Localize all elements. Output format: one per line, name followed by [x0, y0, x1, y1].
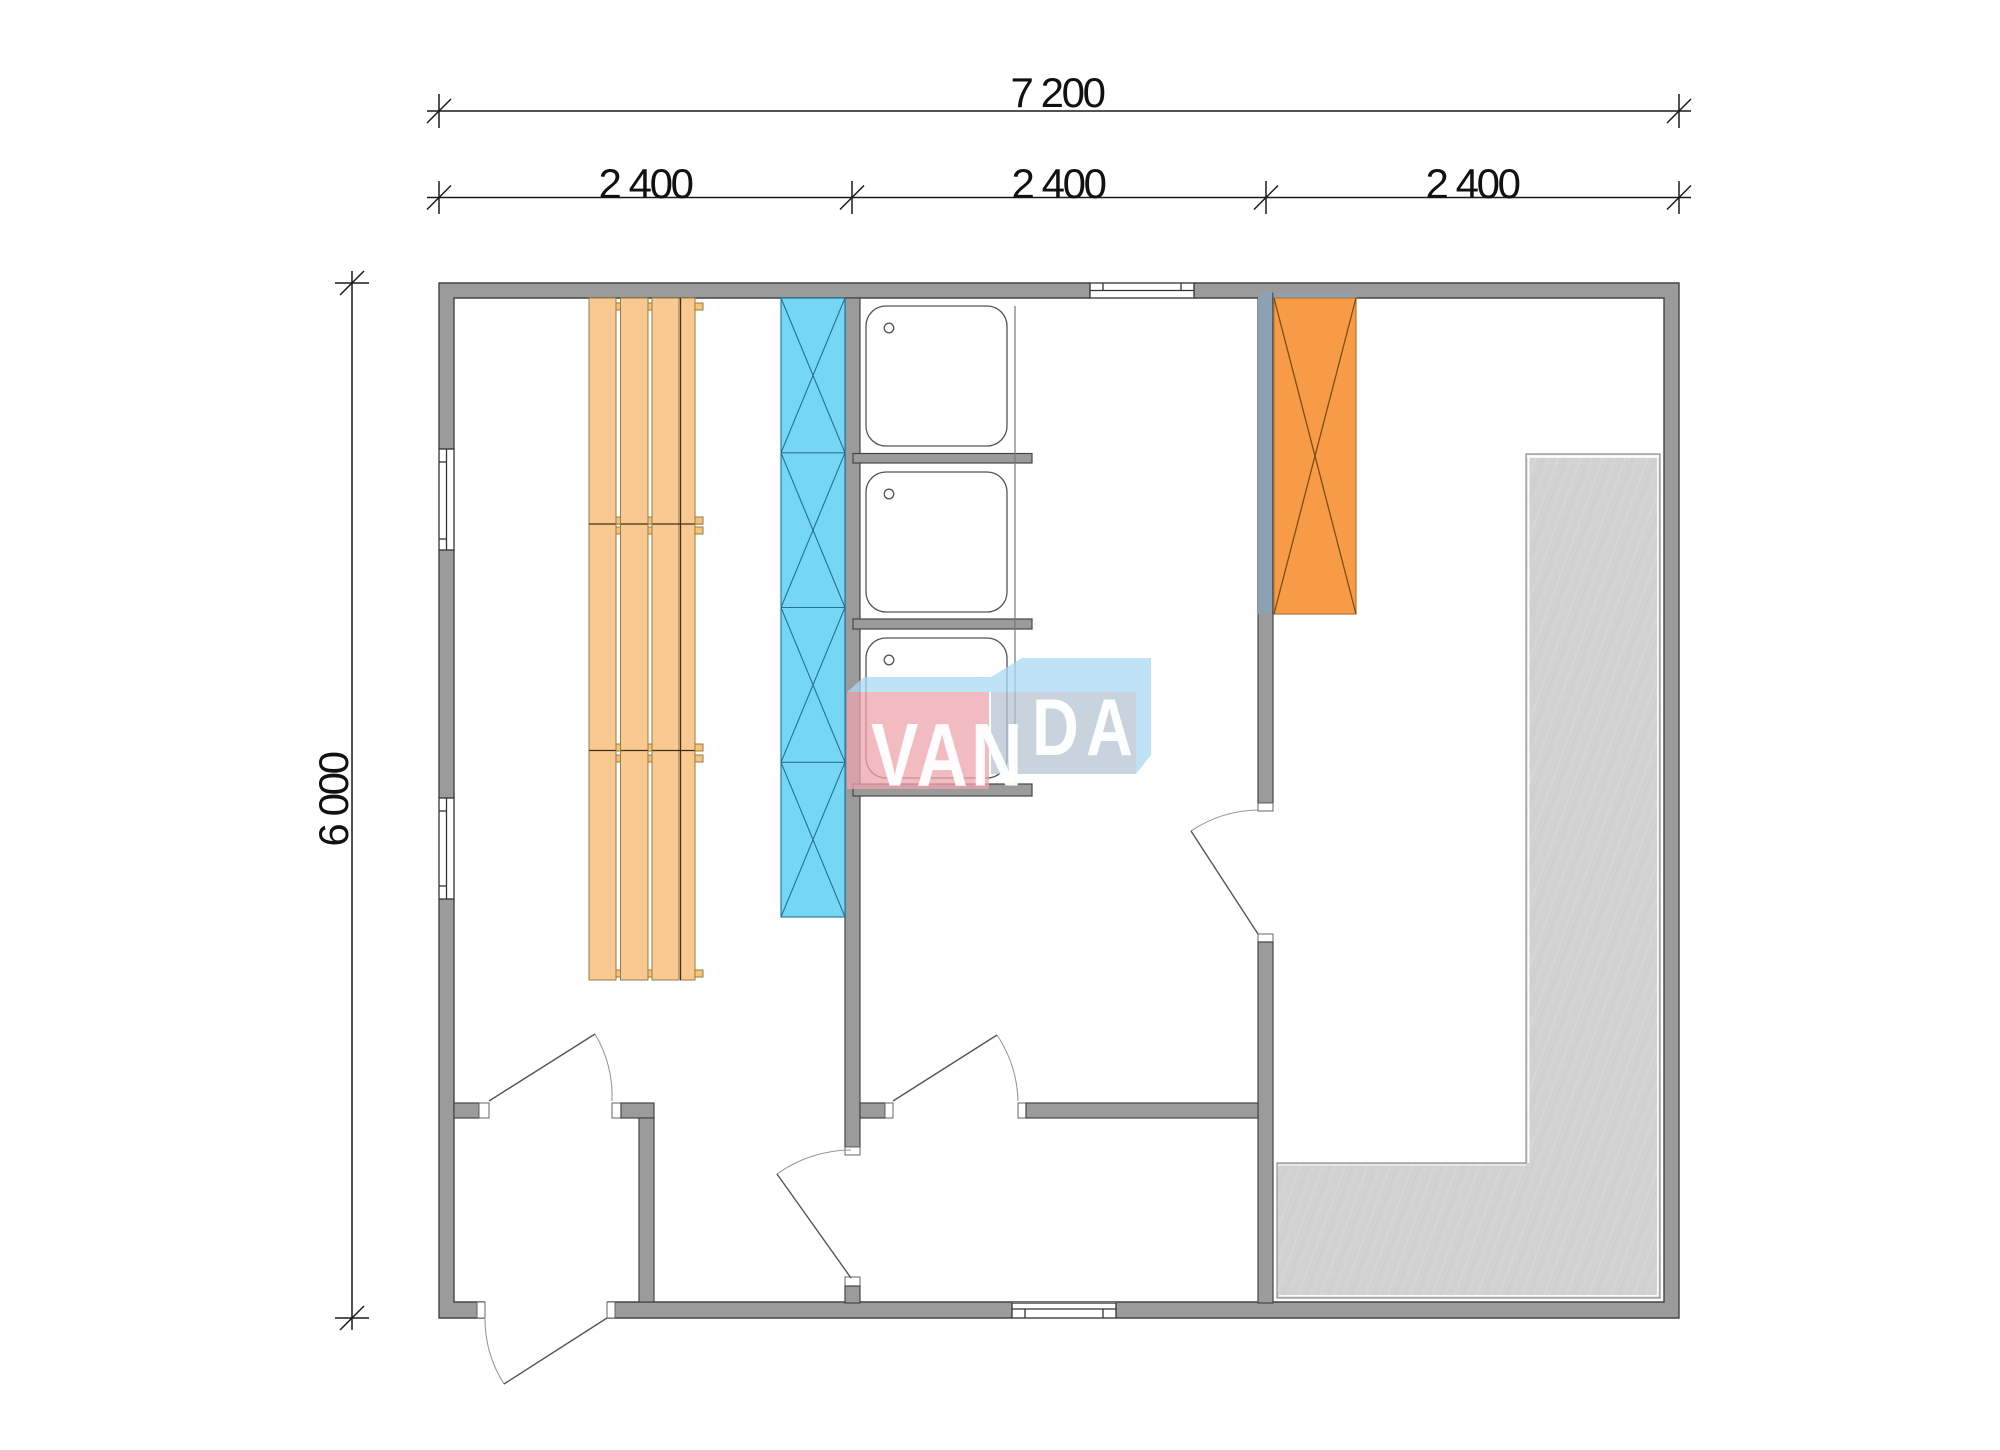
- svg-text:2 400: 2 400: [598, 160, 692, 207]
- svg-text:6 000: 6 000: [310, 752, 357, 846]
- svg-text:2 400: 2 400: [1425, 160, 1519, 207]
- svg-text:7 200: 7 200: [1010, 69, 1104, 116]
- svg-text:2 400: 2 400: [1011, 160, 1105, 207]
- svg-text:DA: DA: [1032, 682, 1140, 773]
- svg-text:VAN: VAN: [871, 706, 1026, 805]
